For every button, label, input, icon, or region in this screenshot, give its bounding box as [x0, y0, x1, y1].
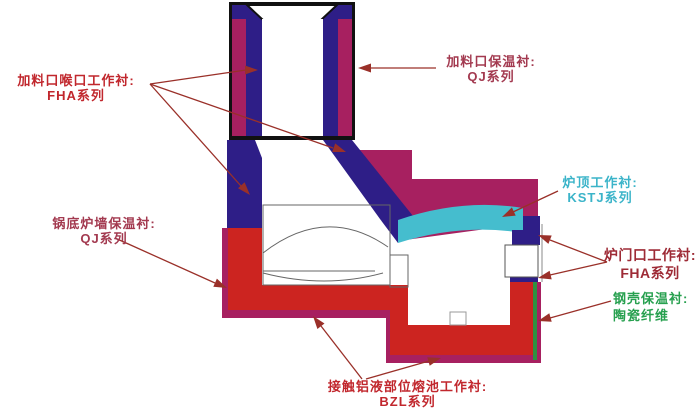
- door-work-arrowhead-1: [538, 235, 552, 244]
- chimney-bottom-border: [229, 136, 355, 140]
- chamber-dome-arc: [263, 227, 388, 253]
- step-section-outline: [390, 255, 408, 287]
- feed-insulation-label-line2: QJ系列: [430, 69, 552, 84]
- roof-work-label: 炉顶工作衬: KSTJ系列: [544, 175, 656, 205]
- door-work-arrowhead-2: [538, 271, 552, 280]
- bath-bottom-arc: [263, 273, 383, 281]
- furnace-lining-diagram: 加料口喉口工作衬: FHA系列 加料口保温衬: QJ系列 炉顶工作衬: KSTJ…: [0, 0, 700, 413]
- pot-wall-insulation-label: 锅底炉墙保温衬: QJ系列: [26, 216, 182, 246]
- chimney-top-opening: [247, 5, 337, 20]
- melt-pool-work-lining: [228, 228, 533, 355]
- chimney-left-lining-strip: [232, 19, 246, 136]
- inner-chamber-outline: [263, 205, 390, 285]
- chimney-flue-interior: [262, 19, 323, 136]
- door-sill-strip: [510, 277, 538, 282]
- feed-throat-label-line2: FHA系列: [0, 88, 152, 103]
- melt-pool-arrow-line-2: [366, 361, 429, 379]
- feed-throat-label-line1: 加料口喉口工作衬:: [0, 73, 152, 88]
- melt-pool-arrow-line-1: [321, 326, 362, 379]
- feed-insulation-label-line1: 加料口保温衬:: [430, 54, 552, 69]
- melt-pool-work-label: 接触铝液部位熔池工作衬: BZL系列: [315, 379, 500, 409]
- roof-work-label-line2: KSTJ系列: [544, 190, 656, 205]
- diagram-canvas: [0, 0, 700, 413]
- pot-wall-insulation-label-line1: 锅底炉墙保温衬:: [26, 216, 182, 231]
- feed-throat-label: 加料口喉口工作衬: FHA系列: [0, 73, 152, 103]
- door-work-label-line1: 炉门口工作衬:: [597, 246, 700, 264]
- melt-pool-work-label-line1: 接触铝液部位熔池工作衬:: [315, 379, 500, 394]
- melt-pool-work-label-line2: BZL系列: [315, 394, 500, 409]
- chimney-right-lining-strip: [338, 19, 352, 136]
- furnace-door-opening: [505, 245, 538, 277]
- door-work-label: 炉门口工作衬: FHA系列: [597, 246, 700, 282]
- pot-wall-insulation-label-line2: QJ系列: [26, 231, 182, 246]
- shell-insulation-arrow-line: [550, 301, 611, 318]
- drain-plug-outline: [450, 312, 466, 325]
- roof-work-label-line1: 炉顶工作衬:: [544, 175, 656, 190]
- shell-insulation-label-line1: 钢壳保温衬:: [613, 290, 700, 307]
- feed-insulation-arrowhead: [358, 64, 371, 73]
- steel-shell-insulation-strip: [533, 282, 537, 360]
- feed-insulation-label: 加料口保温衬: QJ系列: [430, 54, 552, 84]
- shell-insulation-label-line2: 陶瓷纤维: [613, 307, 700, 324]
- door-work-label-line2: FHA系列: [597, 264, 700, 282]
- shell-insulation-label: 钢壳保温衬: 陶瓷纤维: [613, 290, 700, 324]
